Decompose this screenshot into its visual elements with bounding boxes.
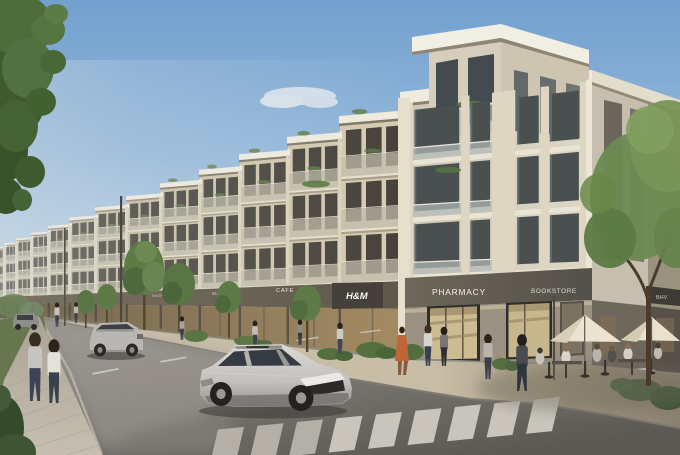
svg-text:BHV: BHV [656,295,668,301]
svg-text:SHOP: SHOP [152,294,163,298]
svg-text:CAFE: CAFE [276,288,294,294]
svg-text:H&M: H&M [346,291,369,302]
svg-text:PHARMACY: PHARMACY [432,287,486,297]
svg-text:BOOKSTORE: BOOKSTORE [531,288,577,295]
